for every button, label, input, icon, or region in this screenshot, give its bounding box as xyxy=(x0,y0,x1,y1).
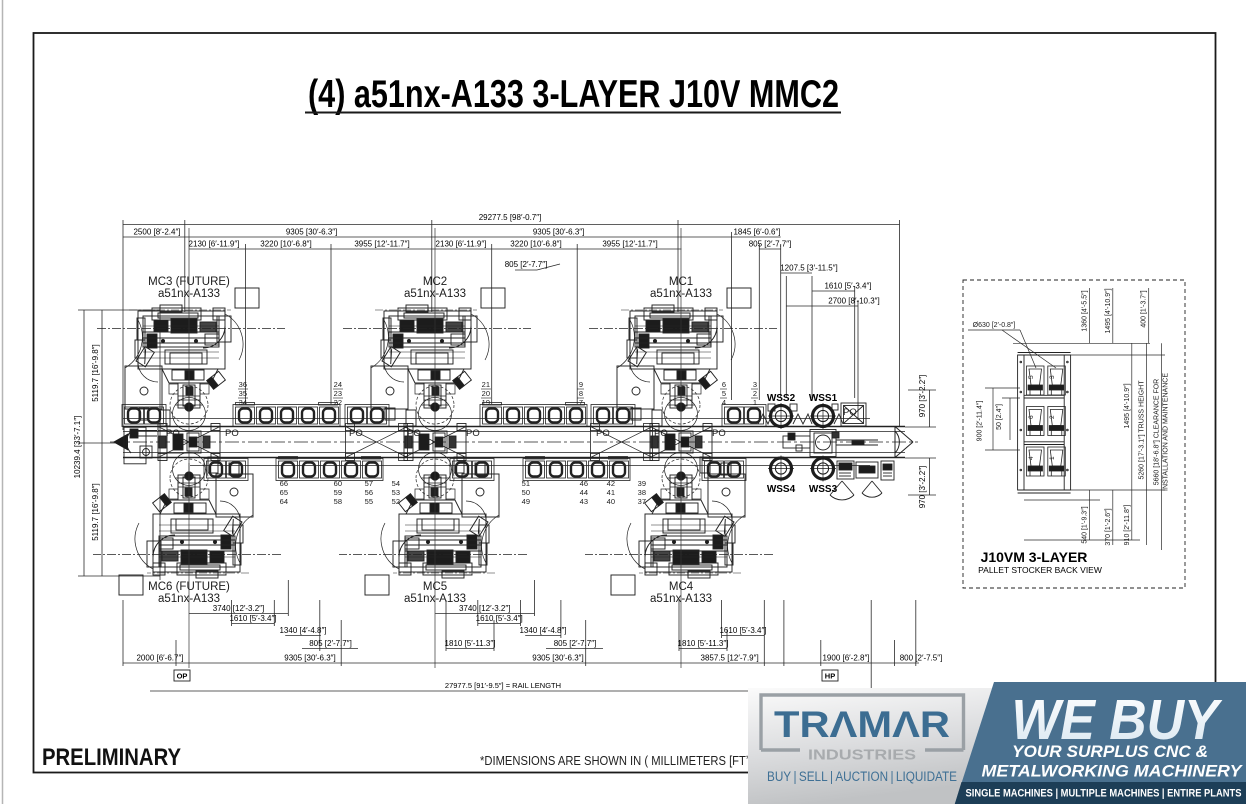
svg-text:55: 55 xyxy=(365,497,373,506)
svg-text:1610 [5′-3.4″]: 1610 [5′-3.4″] xyxy=(824,282,871,291)
svg-text:MC5: MC5 xyxy=(423,581,447,593)
svg-text:60: 60 xyxy=(334,479,342,488)
svg-text:2000 [6′-6.7″]: 2000 [6′-6.7″] xyxy=(136,654,183,663)
svg-text:910 [2′-11.8″]: 910 [2′-11.8″] xyxy=(1124,505,1131,546)
svg-text:5: 5 xyxy=(1028,375,1035,379)
svg-text:3: 3 xyxy=(753,380,757,389)
svg-text:540 [1′-9.3″]: 540 [1′-9.3″] xyxy=(1082,506,1089,543)
svg-text:970 [3′-2.2″]: 970 [3′-2.2″] xyxy=(918,466,927,509)
svg-text:INSTALLATION AND MAINTENANCE: INSTALLATION AND MAINTENANCE xyxy=(1162,373,1169,491)
svg-text:59: 59 xyxy=(334,488,342,497)
svg-text:2130 [6′-11.9″]: 2130 [6′-11.9″] xyxy=(189,240,240,249)
svg-text:24: 24 xyxy=(334,380,342,389)
svg-text:MC3 (FUTURE): MC3 (FUTURE) xyxy=(148,276,230,288)
svg-text:8: 8 xyxy=(579,389,583,398)
svg-text:66: 66 xyxy=(280,479,288,488)
svg-text:2500 [8′-2.4″]: 2500 [8′-2.4″] xyxy=(133,228,180,237)
svg-text:65: 65 xyxy=(280,488,288,497)
svg-text:1340 [4′-4.8″]: 1340 [4′-4.8″] xyxy=(519,626,566,635)
svg-text:34: 34 xyxy=(239,398,247,407)
svg-text:20: 20 xyxy=(482,389,490,398)
svg-text:METALWORKING MACHINERY: METALWORKING MACHINERY xyxy=(982,763,1244,781)
svg-text:1610 [5′-3.4″]: 1610 [5′-3.4″] xyxy=(476,614,523,623)
svg-text:53: 53 xyxy=(392,488,400,497)
svg-text:49: 49 xyxy=(522,497,530,506)
svg-text:37: 37 xyxy=(638,497,646,506)
svg-text:MC6 (FUTURE): MC6 (FUTURE) xyxy=(148,581,230,593)
svg-text:7: 7 xyxy=(579,398,583,407)
svg-text:5119.7 [16′-9.8″]: 5119.7 [16′-9.8″] xyxy=(91,344,100,402)
svg-text:3740 [12′-3.2″]: 3740 [12′-3.2″] xyxy=(213,604,264,613)
svg-text:1: 1 xyxy=(753,398,757,407)
svg-text:970 [3′-2.2″]: 970 [3′-2.2″] xyxy=(918,375,927,418)
svg-text:5: 5 xyxy=(722,389,726,398)
svg-text:3857.5 [12′-7.9″]: 3857.5 [12′-7.9″] xyxy=(701,654,759,663)
svg-text:PO: PO xyxy=(225,428,239,439)
svg-text:5260 [17′-3.1″] TRUSS HEIGHT: 5260 [17′-3.1″] TRUSS HEIGHT xyxy=(1139,380,1146,480)
svg-text:a51nx-A133: a51nx-A133 xyxy=(404,593,466,605)
svg-text:BUY | SELL | AUCTION | LIQUIDA: BUY | SELL | AUCTION | LIQUIDATE xyxy=(767,769,957,784)
svg-text:35: 35 xyxy=(239,389,247,398)
svg-text:23: 23 xyxy=(334,389,342,398)
svg-text:3220 [10′-6.8″]: 3220 [10′-6.8″] xyxy=(260,240,311,249)
svg-text:9: 9 xyxy=(579,380,583,389)
svg-text:56: 56 xyxy=(365,488,373,497)
svg-text:3220 [10′-6.8″]: 3220 [10′-6.8″] xyxy=(510,240,561,249)
svg-text:1845 [6′-0.6″]: 1845 [6′-0.6″] xyxy=(733,228,780,237)
svg-text:400 [1′-3.7″]: 400 [1′-3.7″] xyxy=(1141,290,1148,327)
svg-text:4: 4 xyxy=(1028,456,1035,460)
svg-text:1: 1 xyxy=(1049,456,1056,460)
svg-text:1610 [5′-3.4″]: 1610 [5′-3.4″] xyxy=(719,626,766,635)
svg-text:MC4: MC4 xyxy=(669,581,694,593)
svg-text:9305 [30′-6.3″]: 9305 [30′-6.3″] xyxy=(286,228,337,237)
svg-text:57: 57 xyxy=(365,479,373,488)
svg-text:MC1: MC1 xyxy=(669,276,693,288)
svg-text:1610 [5′-3.4″]: 1610 [5′-3.4″] xyxy=(229,614,276,623)
svg-text:50: 50 xyxy=(522,488,530,497)
svg-text:5119.7 [16′-9.8″]: 5119.7 [16′-9.8″] xyxy=(91,483,100,541)
svg-text:51: 51 xyxy=(522,479,530,488)
svg-text:54: 54 xyxy=(392,479,400,488)
svg-text:PO: PO xyxy=(166,428,180,439)
svg-text:Ø630 [2′-0.8″]: Ø630 [2′-0.8″] xyxy=(973,322,1016,329)
svg-text:INDUSTRIES: INDUSTRIES xyxy=(808,748,916,764)
svg-text:6: 6 xyxy=(722,380,726,389)
svg-text:3740 [12′-3.2″]: 3740 [12′-3.2″] xyxy=(459,604,510,613)
svg-text:21: 21 xyxy=(482,380,490,389)
svg-text:19: 19 xyxy=(482,398,490,407)
svg-text:1810 [5′-11.3″]: 1810 [5′-11.3″] xyxy=(445,639,496,648)
svg-text:3955 [12′-11.7″]: 3955 [12′-11.7″] xyxy=(602,240,657,249)
svg-text:1360 [4′-5.5″]: 1360 [4′-5.5″] xyxy=(1082,290,1089,331)
svg-text:YOUR SURPLUS CNC &: YOUR SURPLUS CNC & xyxy=(1012,743,1208,761)
svg-text:WSS4: WSS4 xyxy=(767,484,796,495)
svg-text:PO: PO xyxy=(596,428,610,439)
svg-text:36: 36 xyxy=(239,380,247,389)
svg-text:4: 4 xyxy=(722,398,726,407)
svg-text:PO: PO xyxy=(712,428,726,439)
svg-text:22: 22 xyxy=(334,398,342,407)
svg-text:370 [1′-2.6″]: 370 [1′-2.6″] xyxy=(1105,508,1112,545)
svg-text:3: 3 xyxy=(1049,375,1056,379)
svg-text:27977.5 [91′-9.5″] = RAIL LENG: 27977.5 [91′-9.5″] = RAIL LENGTH xyxy=(445,681,561,690)
svg-text:9305 [30′-6.3″]: 9305 [30′-6.3″] xyxy=(533,228,584,237)
svg-text:58: 58 xyxy=(334,497,342,506)
svg-text:*DIMENSIONS ARE SHOWN IN ( MIL: *DIMENSIONS ARE SHOWN IN ( MILLIMETERS [… xyxy=(480,754,777,768)
svg-text:46: 46 xyxy=(580,479,588,488)
svg-text:WSS3: WSS3 xyxy=(809,484,838,495)
svg-text:3955 [12′-11.7″]: 3955 [12′-11.7″] xyxy=(354,240,409,249)
svg-text:1900 [6′-2.8″]: 1900 [6′-2.8″] xyxy=(822,654,869,663)
svg-text:(4) a51nx-A133 3-LAYER J10V MM: (4) a51nx-A133 3-LAYER J10V MMC2 xyxy=(308,73,839,116)
svg-text:2: 2 xyxy=(753,389,757,398)
svg-text:a51nx-A133: a51nx-A133 xyxy=(158,288,220,300)
svg-text:805 [2′-7.7″]: 805 [2′-7.7″] xyxy=(749,240,792,249)
svg-text:PO: PO xyxy=(407,428,421,439)
svg-text:50 [2.4″]: 50 [2.4″] xyxy=(996,404,1003,430)
svg-text:2700 [8′-10.3″]: 2700 [8′-10.3″] xyxy=(828,297,879,306)
svg-text:39: 39 xyxy=(638,479,646,488)
svg-text:40: 40 xyxy=(607,497,615,506)
svg-text:5660 [18′-6.8″] CLEARANCE FOR: 5660 [18′-6.8″] CLEARANCE FOR xyxy=(1153,379,1160,486)
svg-text:a51nx-A133: a51nx-A133 xyxy=(158,593,220,605)
svg-text:10239.4 [33′-7.1″]: 10239.4 [33′-7.1″] xyxy=(73,416,82,479)
svg-text:38: 38 xyxy=(638,488,646,497)
svg-text:52: 52 xyxy=(392,497,400,506)
svg-text:2: 2 xyxy=(1049,415,1056,419)
svg-text:a51nx-A133: a51nx-A133 xyxy=(404,288,466,300)
svg-text:PO: PO xyxy=(843,407,857,418)
svg-text:PALLET STOCKER BACK VIEW: PALLET STOCKER BACK VIEW xyxy=(978,565,1102,575)
svg-text:64: 64 xyxy=(280,497,288,506)
svg-text:1340 [4′-4.8″]: 1340 [4′-4.8″] xyxy=(279,626,326,635)
svg-text:WSS1: WSS1 xyxy=(809,393,838,404)
svg-text:41: 41 xyxy=(607,488,615,497)
svg-text:1495 [4′-10.9″]: 1495 [4′-10.9″] xyxy=(1105,288,1112,333)
svg-text:PO: PO xyxy=(654,428,668,439)
svg-text:43: 43 xyxy=(580,497,588,506)
svg-text:SINGLE MACHINES | MULTIPLE MAC: SINGLE MACHINES | MULTIPLE MACHINES | EN… xyxy=(966,788,1242,800)
svg-text:1810 [5′-11.3″]: 1810 [5′-11.3″] xyxy=(678,639,729,648)
svg-text:HP: HP xyxy=(825,672,835,681)
svg-text:a51nx-A133: a51nx-A133 xyxy=(650,288,712,300)
svg-text:42: 42 xyxy=(607,479,615,488)
svg-text:800 [2′-7.5″]: 800 [2′-7.5″] xyxy=(900,654,943,663)
svg-text:805 [2′-7.7″]: 805 [2′-7.7″] xyxy=(309,639,352,648)
svg-text:OP: OP xyxy=(177,672,188,681)
svg-text:PRELIMINARY: PRELIMINARY xyxy=(42,744,181,771)
svg-text:9305 [30′-6.3″]: 9305 [30′-6.3″] xyxy=(532,654,583,663)
svg-text:MC2: MC2 xyxy=(423,276,447,288)
svg-text:WSS2: WSS2 xyxy=(767,393,796,404)
svg-text:1207.5 [3′-11.5″]: 1207.5 [3′-11.5″] xyxy=(780,264,838,273)
svg-text:805 [2′-7.7″]: 805 [2′-7.7″] xyxy=(505,260,548,269)
svg-text:PO: PO xyxy=(466,428,480,439)
svg-text:PO: PO xyxy=(349,428,363,439)
svg-text:6: 6 xyxy=(1028,415,1035,419)
svg-text:J10VM 3-LAYER: J10VM 3-LAYER xyxy=(981,549,1088,565)
svg-text:a51nx-A133: a51nx-A133 xyxy=(650,593,712,605)
svg-text:44: 44 xyxy=(580,488,588,497)
svg-text:805 [2′-7.7″]: 805 [2′-7.7″] xyxy=(554,639,597,648)
svg-text:2130 [6′-11.9″]: 2130 [6′-11.9″] xyxy=(436,240,487,249)
svg-text:TRΛMΛR: TRΛMΛR xyxy=(774,704,950,745)
svg-text:29277.5 [98′-0.7″]: 29277.5 [98′-0.7″] xyxy=(479,213,542,222)
svg-text:9305 [30′-6.3″]: 9305 [30′-6.3″] xyxy=(284,654,335,663)
svg-text:1495 [4′-10.9″]: 1495 [4′-10.9″] xyxy=(1124,383,1131,428)
svg-text:900 [2′-11.4″]: 900 [2′-11.4″] xyxy=(977,401,984,442)
